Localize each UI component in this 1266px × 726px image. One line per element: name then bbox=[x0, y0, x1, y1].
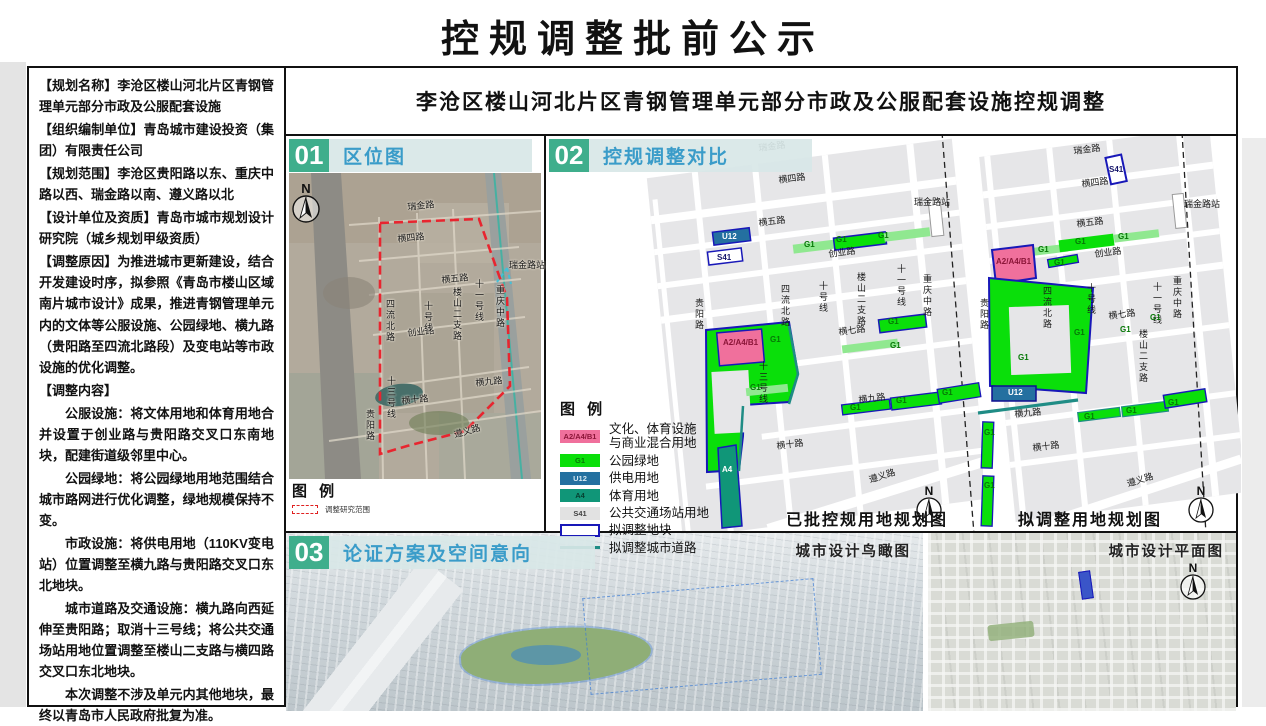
plan-render: 城市设计平面图 N bbox=[928, 533, 1236, 711]
mixed-use-swatch: A2/A4/B1 bbox=[560, 430, 600, 443]
sidebar-paragraph: 【规划范围】李沧区贵阳路以东、重庆中路以西、瑞金路以南、遵义路以北 bbox=[39, 163, 274, 205]
page-margin-right bbox=[1242, 138, 1266, 707]
section-location: 01 区位图 bbox=[286, 136, 546, 531]
north-compass: N bbox=[1186, 484, 1216, 526]
park-green-swatch: G1 bbox=[560, 454, 600, 467]
sidebar-paragraph: 公服设施：将文体用地和体育用地合并设置于创业路与贵阳路交叉口东南地块，配建街道级… bbox=[39, 403, 274, 466]
legend-row: U12 供电用地 bbox=[560, 471, 785, 485]
info-sidebar: 【规划名称】李沧区楼山河北片区青钢管理单元部分市政及公服配套设施 【组织编制单位… bbox=[29, 68, 286, 705]
sidebar-paragraph: 【设计单位及资质】青岛市城市规划设计研究院（城乡规划甲级资质） bbox=[39, 207, 274, 249]
adjust-parcel-swatch bbox=[560, 524, 600, 537]
map-caption: 拟调整用地规划图 bbox=[1018, 506, 1162, 530]
legend-row: A4 体育用地 bbox=[560, 489, 785, 503]
svg-text:N: N bbox=[925, 484, 934, 498]
section-title: 论证方案及空间意向 bbox=[329, 536, 595, 569]
comparison-legend: 图 例 A2/A4/B1 文化、体育设施 与商业混合用地 G1 公园绿地 U12… bbox=[560, 398, 785, 555]
sports-swatch: A4 bbox=[560, 489, 600, 502]
section-03-header: 03 论证方案及空间意向 bbox=[289, 536, 595, 569]
svg-text:N: N bbox=[301, 181, 310, 196]
section-design: 城市设计鸟瞰图 03 论证方案及空间意向 城市设计平面图 N bbox=[286, 533, 1236, 711]
legend-label: 拟调整地块 bbox=[609, 523, 672, 537]
legend-label: 公共交通场站用地 bbox=[609, 506, 709, 520]
sidebar-paragraph: 市政设施：将供电用地（110KV变电站）位置调整至横九路与贵阳路交叉口东北地块。 bbox=[39, 533, 274, 596]
boundary-swatch bbox=[292, 505, 318, 514]
section-02-header: 02 控规调整对比 bbox=[549, 139, 812, 172]
legend-label: 与商业混合用地 bbox=[609, 436, 697, 450]
image-caption: 城市设计鸟瞰图 bbox=[796, 540, 912, 561]
sidebar-paragraph: 公园绿地：将公园绿地用地范围结合城市路网进行优化调整，绿地规模保持不变。 bbox=[39, 468, 274, 531]
sidebar-paragraph: 城市道路及交通设施：横九路向西延伸至贵阳路；取消十三号线；将公共交通场站用地位置… bbox=[39, 598, 274, 682]
content-frame: 【规划名称】李沧区楼山河北片区青钢管理单元部分市政及公服配套设施 【组织编制单位… bbox=[27, 66, 1238, 707]
location-legend: 图 例 调整研究范围 bbox=[292, 480, 532, 515]
legend-label: 体育用地 bbox=[609, 489, 659, 503]
legend-label: 调整研究范围 bbox=[325, 504, 370, 515]
legend-row: A2/A4/B1 文化、体育设施 与商业混合用地 bbox=[560, 422, 785, 451]
section-number: 02 bbox=[549, 139, 589, 172]
section-number: 01 bbox=[289, 139, 329, 172]
section-title: 区位图 bbox=[329, 139, 532, 172]
page-margin-left bbox=[0, 62, 26, 707]
legend-label: 公园绿地 bbox=[609, 454, 659, 468]
legend-label: 拟调整城市道路 bbox=[609, 541, 697, 555]
section-number: 03 bbox=[289, 536, 329, 569]
sidebar-paragraph: 【组织编制单位】青岛城市建设投资（集团）有限责任公司 bbox=[39, 119, 274, 161]
legend-label: 文化、体育设施 bbox=[609, 422, 697, 436]
transit-swatch: S41 bbox=[560, 507, 600, 520]
section-comparison: 02 控规调整对比 bbox=[546, 136, 1236, 531]
route-outline bbox=[582, 578, 822, 695]
image-caption: 城市设计平面图 bbox=[1109, 540, 1225, 561]
legend-row: S41 公共交通场站用地 bbox=[560, 506, 785, 520]
legend-label: 供电用地 bbox=[609, 471, 659, 485]
sidebar-paragraph: 【调整内容】 bbox=[39, 380, 274, 401]
north-compass: N bbox=[289, 181, 323, 227]
page-title: 控规调整批前公示 bbox=[0, 8, 1266, 63]
proposed-plan-map: 瑞金路S41横四路横五路瑞金路站G1G1G1创业路A2/A4/B1G1贵阳路四流… bbox=[976, 136, 1241, 531]
sidebar-paragraph: 【调整原因】为推进城市更新建设，结合开发建设时序，拟参照《青岛市楼山区域南片城市… bbox=[39, 251, 274, 377]
satellite-image bbox=[289, 173, 541, 479]
plan-subtitle: 李沧区楼山河北片区青钢管理单元部分市政及公服配套设施控规调整 bbox=[286, 68, 1236, 136]
location-map: 瑞金路横四路横五路创业路四流北路十号线楼山二支路十一号线瑞金路站重庆中路贵阳路十… bbox=[289, 173, 541, 479]
proposed-plan-drawing bbox=[976, 136, 1241, 531]
main-area: 李沧区楼山河北片区青钢管理单元部分市政及公服配套设施控规调整 01 区位图 bbox=[286, 68, 1236, 705]
legend-title: 图 例 bbox=[560, 398, 785, 419]
svg-text:N: N bbox=[1197, 484, 1206, 498]
section-title: 控规调整对比 bbox=[589, 139, 812, 172]
section-01-header: 01 区位图 bbox=[289, 139, 532, 172]
power-swatch: U12 bbox=[560, 472, 600, 485]
legend-title: 图 例 bbox=[292, 480, 532, 501]
pond bbox=[511, 645, 581, 665]
map-caption: 已批控规用地规划图 bbox=[786, 506, 948, 530]
sidebar-paragraph: 本次调整不涉及单元内其他地块，最终以青岛市人民政府批复为准。 bbox=[39, 684, 274, 726]
north-compass: N bbox=[1178, 561, 1208, 603]
sidebar-paragraph: 【规划名称】李沧区楼山河北片区青钢管理单元部分市政及公服配套设施 bbox=[39, 75, 274, 117]
legend-row: G1 公园绿地 bbox=[560, 454, 785, 468]
birdseye-render: 城市设计鸟瞰图 03 论证方案及空间意向 bbox=[286, 533, 923, 711]
svg-text:N: N bbox=[1189, 561, 1198, 575]
